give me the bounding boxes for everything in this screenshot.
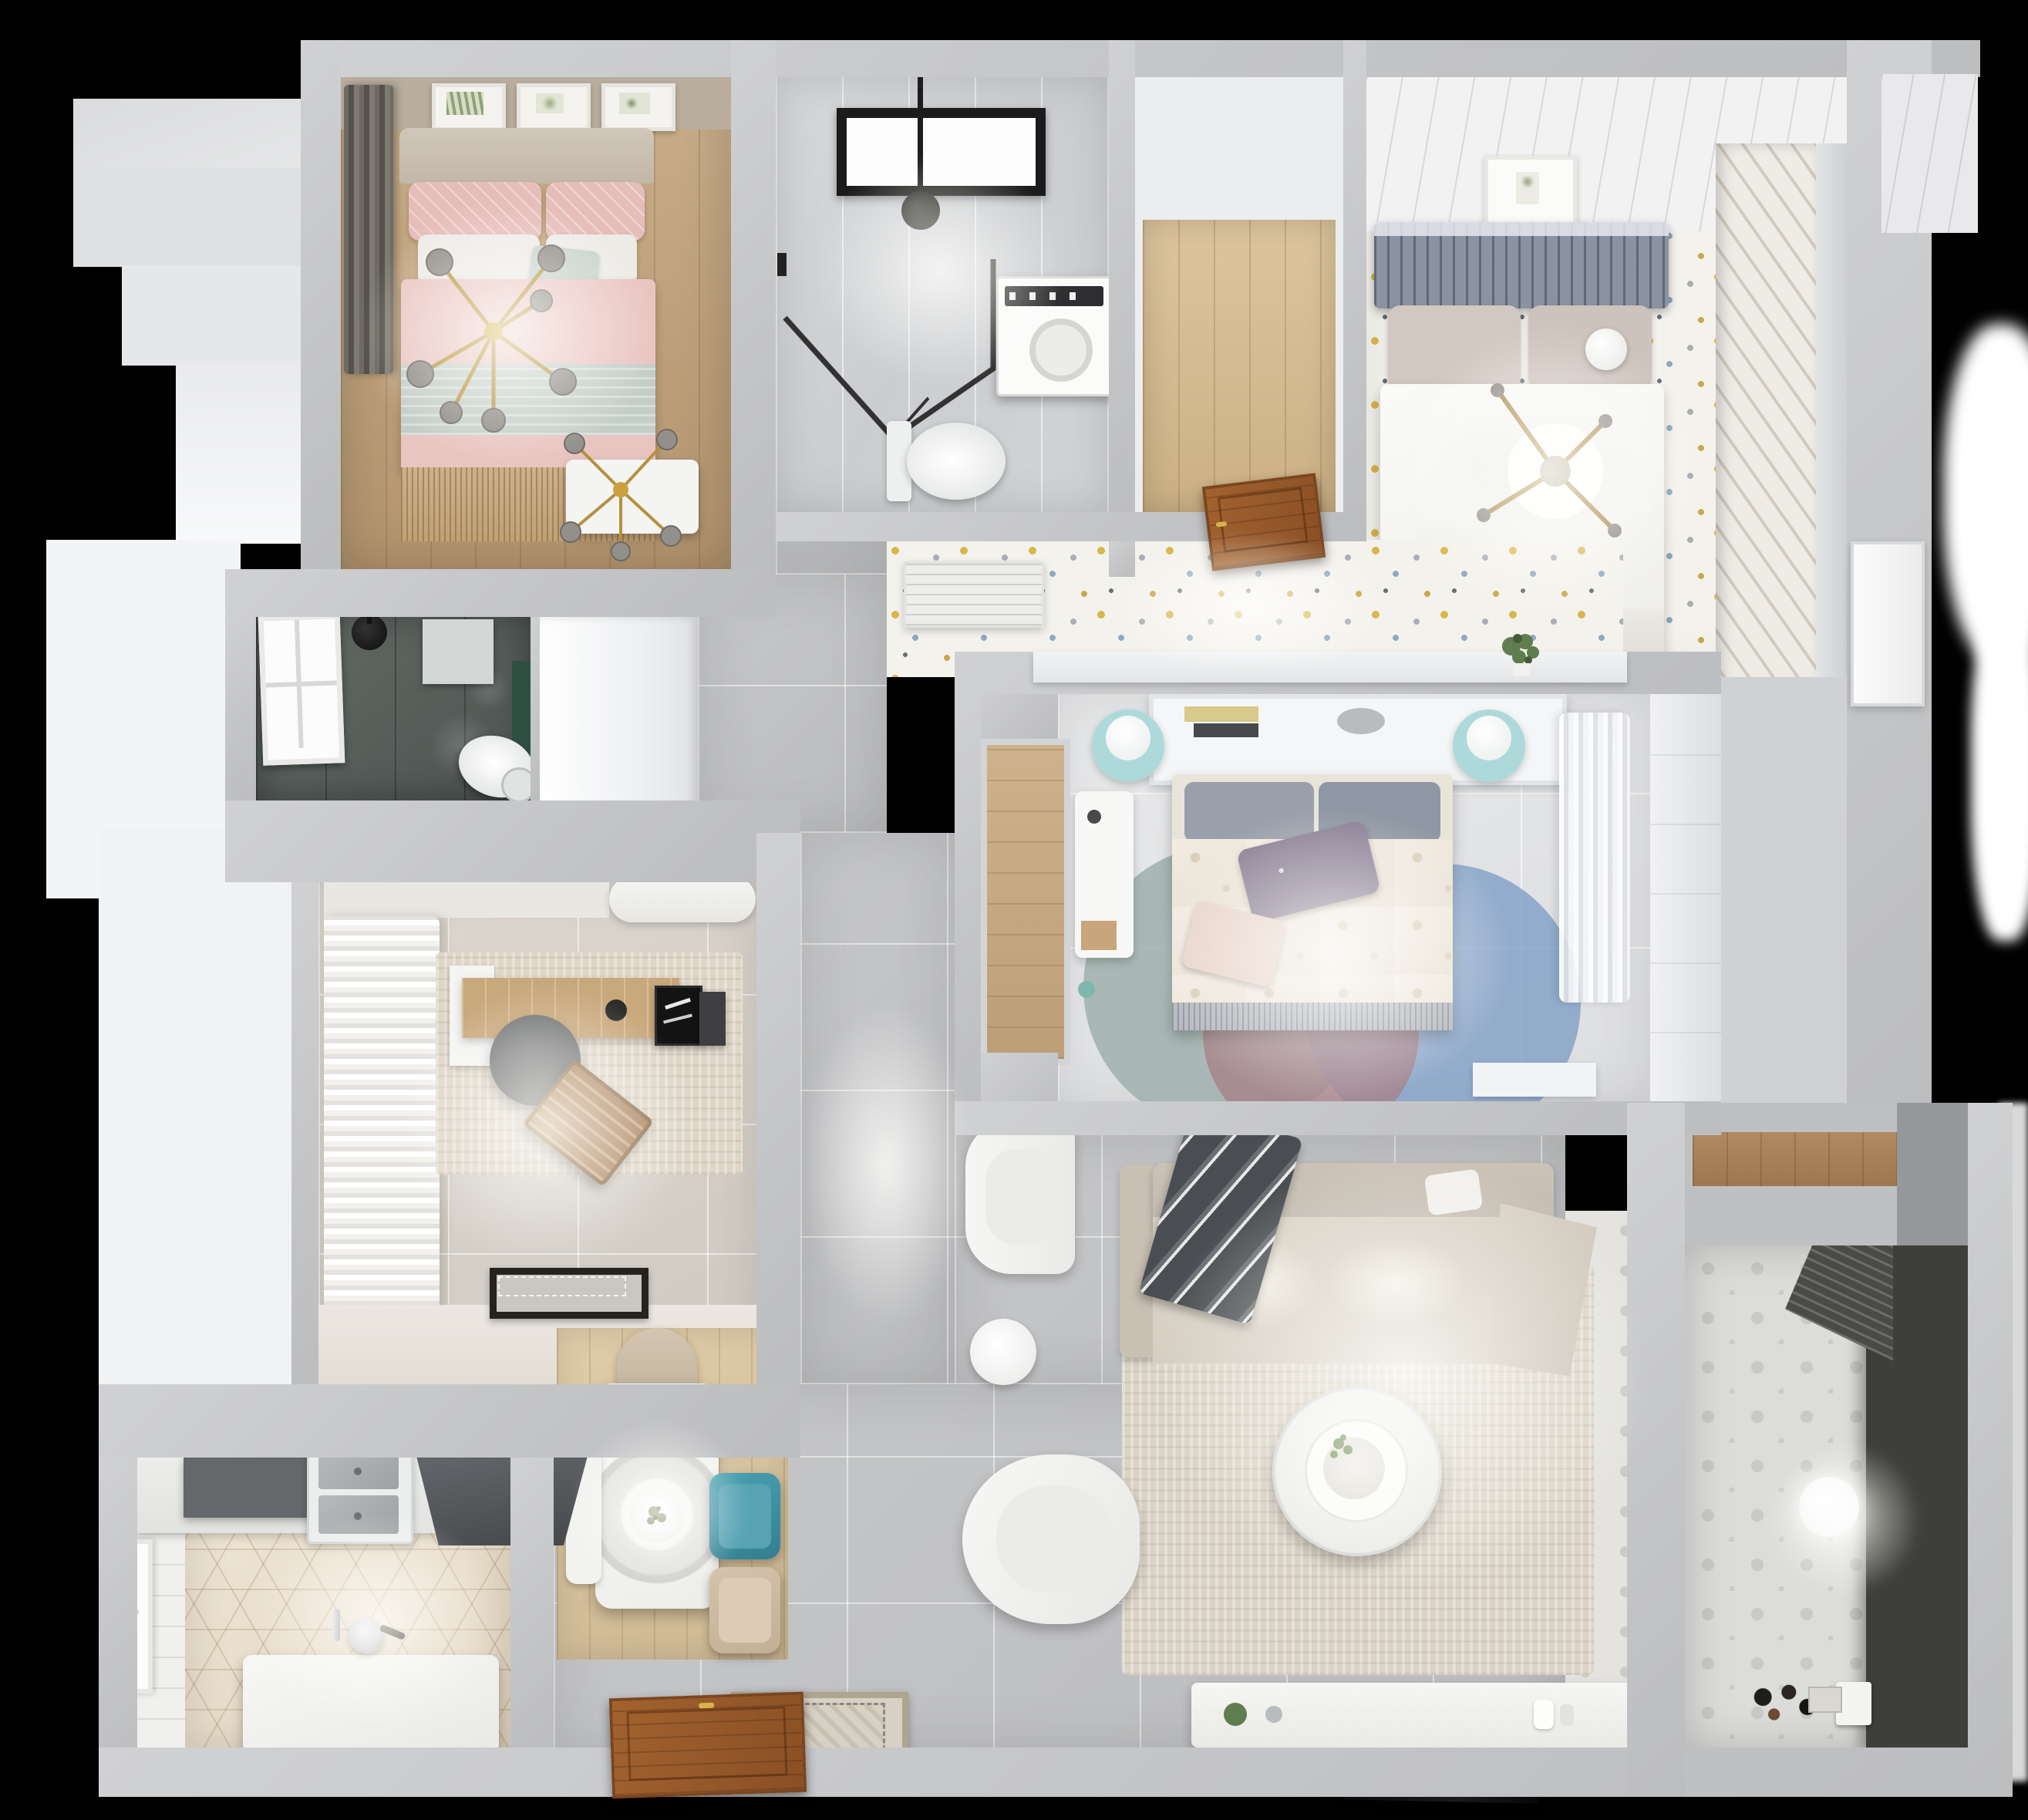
side-door-wood xyxy=(609,1692,807,1799)
door-handle xyxy=(699,1703,714,1709)
window-valance xyxy=(324,882,609,918)
lamp-shade xyxy=(1467,716,1511,760)
bed-headboard-slate xyxy=(1374,222,1669,308)
pillow-gray xyxy=(1184,782,1314,842)
wall-bottom xyxy=(99,1748,2013,1797)
wall-study-left xyxy=(291,882,318,1384)
double-sink xyxy=(307,1444,413,1544)
armchair-seat xyxy=(985,1149,1059,1245)
side-table-round xyxy=(970,1319,1036,1385)
wall-kitchen-top xyxy=(99,1384,800,1458)
hall-cabinet-block xyxy=(540,617,698,829)
wall-art-frame xyxy=(517,83,591,131)
leaning-frame xyxy=(699,992,726,1046)
bed-master xyxy=(1172,774,1453,1030)
sheer-curtains xyxy=(1559,713,1630,1003)
wall-kitchen-left xyxy=(99,1458,137,1797)
desk-plant-pot xyxy=(605,999,627,1021)
shower-valve xyxy=(777,253,787,276)
wall-vertical xyxy=(1109,40,1135,541)
books-stack xyxy=(1184,706,1258,722)
exterior-ground-patch xyxy=(99,830,295,1388)
desk-white xyxy=(1075,791,1134,958)
shoe-cabinet-vent xyxy=(904,561,1044,628)
oak-floor xyxy=(1143,220,1336,512)
low-bench-white xyxy=(1473,1063,1596,1097)
room-bathroom-main xyxy=(776,74,1109,512)
dining-chair-beige-south xyxy=(709,1567,780,1653)
wall-left-bedroom xyxy=(301,40,341,575)
botanical-print xyxy=(536,93,564,113)
wall-study-right xyxy=(756,833,800,1384)
armchair-seat xyxy=(996,1485,1112,1593)
corridor-tile xyxy=(776,540,887,575)
wall-kitchen-right xyxy=(510,1458,554,1751)
botanical-print xyxy=(619,93,650,114)
white-interior-door xyxy=(1851,541,1925,706)
room-bedroom-master xyxy=(1058,694,1650,1103)
botanical-print xyxy=(446,92,483,115)
wardrobe-master xyxy=(1650,694,1721,1103)
panel-plank-topright xyxy=(1881,74,1978,233)
wall-art-frame xyxy=(601,83,675,131)
desk-organizer xyxy=(1081,921,1117,950)
lamp-shade xyxy=(1106,716,1150,760)
washer-door-ring xyxy=(1029,318,1093,382)
pen-cup xyxy=(1087,810,1101,824)
chandelier-gold-small xyxy=(540,409,702,571)
small-basket xyxy=(1808,1687,1842,1713)
wardrobe-side-panel xyxy=(1816,143,1847,677)
wall-horizontal xyxy=(225,800,800,882)
room-bedroom-pink xyxy=(341,77,731,571)
books-stack xyxy=(1194,723,1258,737)
wall-vertical xyxy=(731,40,776,575)
botanical-print xyxy=(1516,172,1539,204)
sofa-pillow xyxy=(1424,1168,1484,1215)
armchair-white xyxy=(965,1120,1075,1274)
floor-faucet xyxy=(333,1609,340,1641)
art-sketch xyxy=(663,1013,692,1023)
room-balcony xyxy=(1685,1245,1968,1751)
sink-basin xyxy=(318,1452,399,1489)
wall-bathroom-left xyxy=(225,613,256,802)
decor-bowl xyxy=(1337,708,1385,734)
wall-horizontal xyxy=(225,569,776,617)
nightstand-lamp-aqua xyxy=(1453,709,1525,782)
room-balcony-niche xyxy=(1685,1103,1968,1245)
drying-rack-angled xyxy=(1785,1245,1893,1361)
kettle-chrome xyxy=(349,1618,384,1653)
front-door-wood xyxy=(1202,473,1326,571)
nightstand-lamp-aqua xyxy=(1092,709,1164,782)
room-bathroom-dark xyxy=(256,613,531,802)
door-panel-line xyxy=(1218,487,1309,553)
console-decor-vase xyxy=(1560,1704,1574,1726)
doormat-dark xyxy=(490,1268,648,1319)
wall-balcony-right xyxy=(1968,1103,2013,1797)
table-plant-sprig xyxy=(1316,1424,1369,1478)
art-sketch xyxy=(665,998,691,1009)
island-bench xyxy=(243,1655,499,1754)
console-decor-green xyxy=(1224,1703,1247,1726)
wall-art-frame xyxy=(432,83,506,131)
bedding-roll xyxy=(609,882,756,922)
range-hood xyxy=(416,1456,588,1545)
floor-plan-stage xyxy=(0,0,2028,1820)
console-decor-vase xyxy=(1534,1700,1554,1729)
sink-basin xyxy=(318,1495,399,1534)
tv-console xyxy=(1191,1683,1632,1748)
curtains-ruffled xyxy=(324,916,440,1342)
doormat-stitch xyxy=(498,1276,626,1296)
shower-glass-enclosure xyxy=(776,167,1022,460)
wall-vertical xyxy=(1343,40,1366,541)
room-study xyxy=(318,882,756,1384)
wall-master-west xyxy=(955,677,981,1135)
console-plant xyxy=(1481,623,1558,688)
wall-shelf xyxy=(423,619,494,684)
teal-cup xyxy=(1078,981,1095,998)
bed-headboard xyxy=(399,128,654,184)
window xyxy=(258,613,345,766)
exterior-light-blob xyxy=(1971,602,2028,941)
washing-machine xyxy=(996,276,1109,396)
door-panel-line xyxy=(626,1706,787,1781)
bed-footer-fringe xyxy=(1172,1003,1453,1030)
exterior-ground-patch xyxy=(122,265,324,366)
wardrobe-louvered xyxy=(1716,143,1816,677)
pendant-ball-light xyxy=(1799,1477,1859,1537)
dining-chair-teal xyxy=(709,1473,780,1559)
sink-drain xyxy=(354,1468,362,1475)
wall-zone-right xyxy=(1721,677,1847,1103)
armchair-white-large xyxy=(962,1454,1140,1624)
niche-wood-wardrobe xyxy=(981,739,1070,1065)
chair-seat xyxy=(719,1578,771,1643)
wall-art-frame xyxy=(1484,156,1577,228)
art-frame-black xyxy=(655,986,702,1046)
desk-top-wood xyxy=(462,978,679,1038)
wall-stub xyxy=(1109,541,1135,577)
round-mirror xyxy=(501,767,531,802)
wall-master-south xyxy=(955,1101,1721,1135)
washer-control-panel xyxy=(1005,286,1103,306)
niche-shadow-panel xyxy=(1897,1103,1968,1245)
corridor-tile xyxy=(800,833,955,1384)
room-entry-closet xyxy=(1135,74,1343,512)
wall-top xyxy=(301,40,1980,77)
toilet-bowl xyxy=(907,423,1006,500)
wall-balcony-west xyxy=(1627,1103,1685,1797)
pendant-plant xyxy=(637,1495,677,1535)
headboard-top-lip xyxy=(1374,222,1669,236)
chair-seat xyxy=(719,1484,771,1549)
sink-drain xyxy=(354,1512,362,1520)
console-decor-knob xyxy=(1265,1706,1282,1723)
